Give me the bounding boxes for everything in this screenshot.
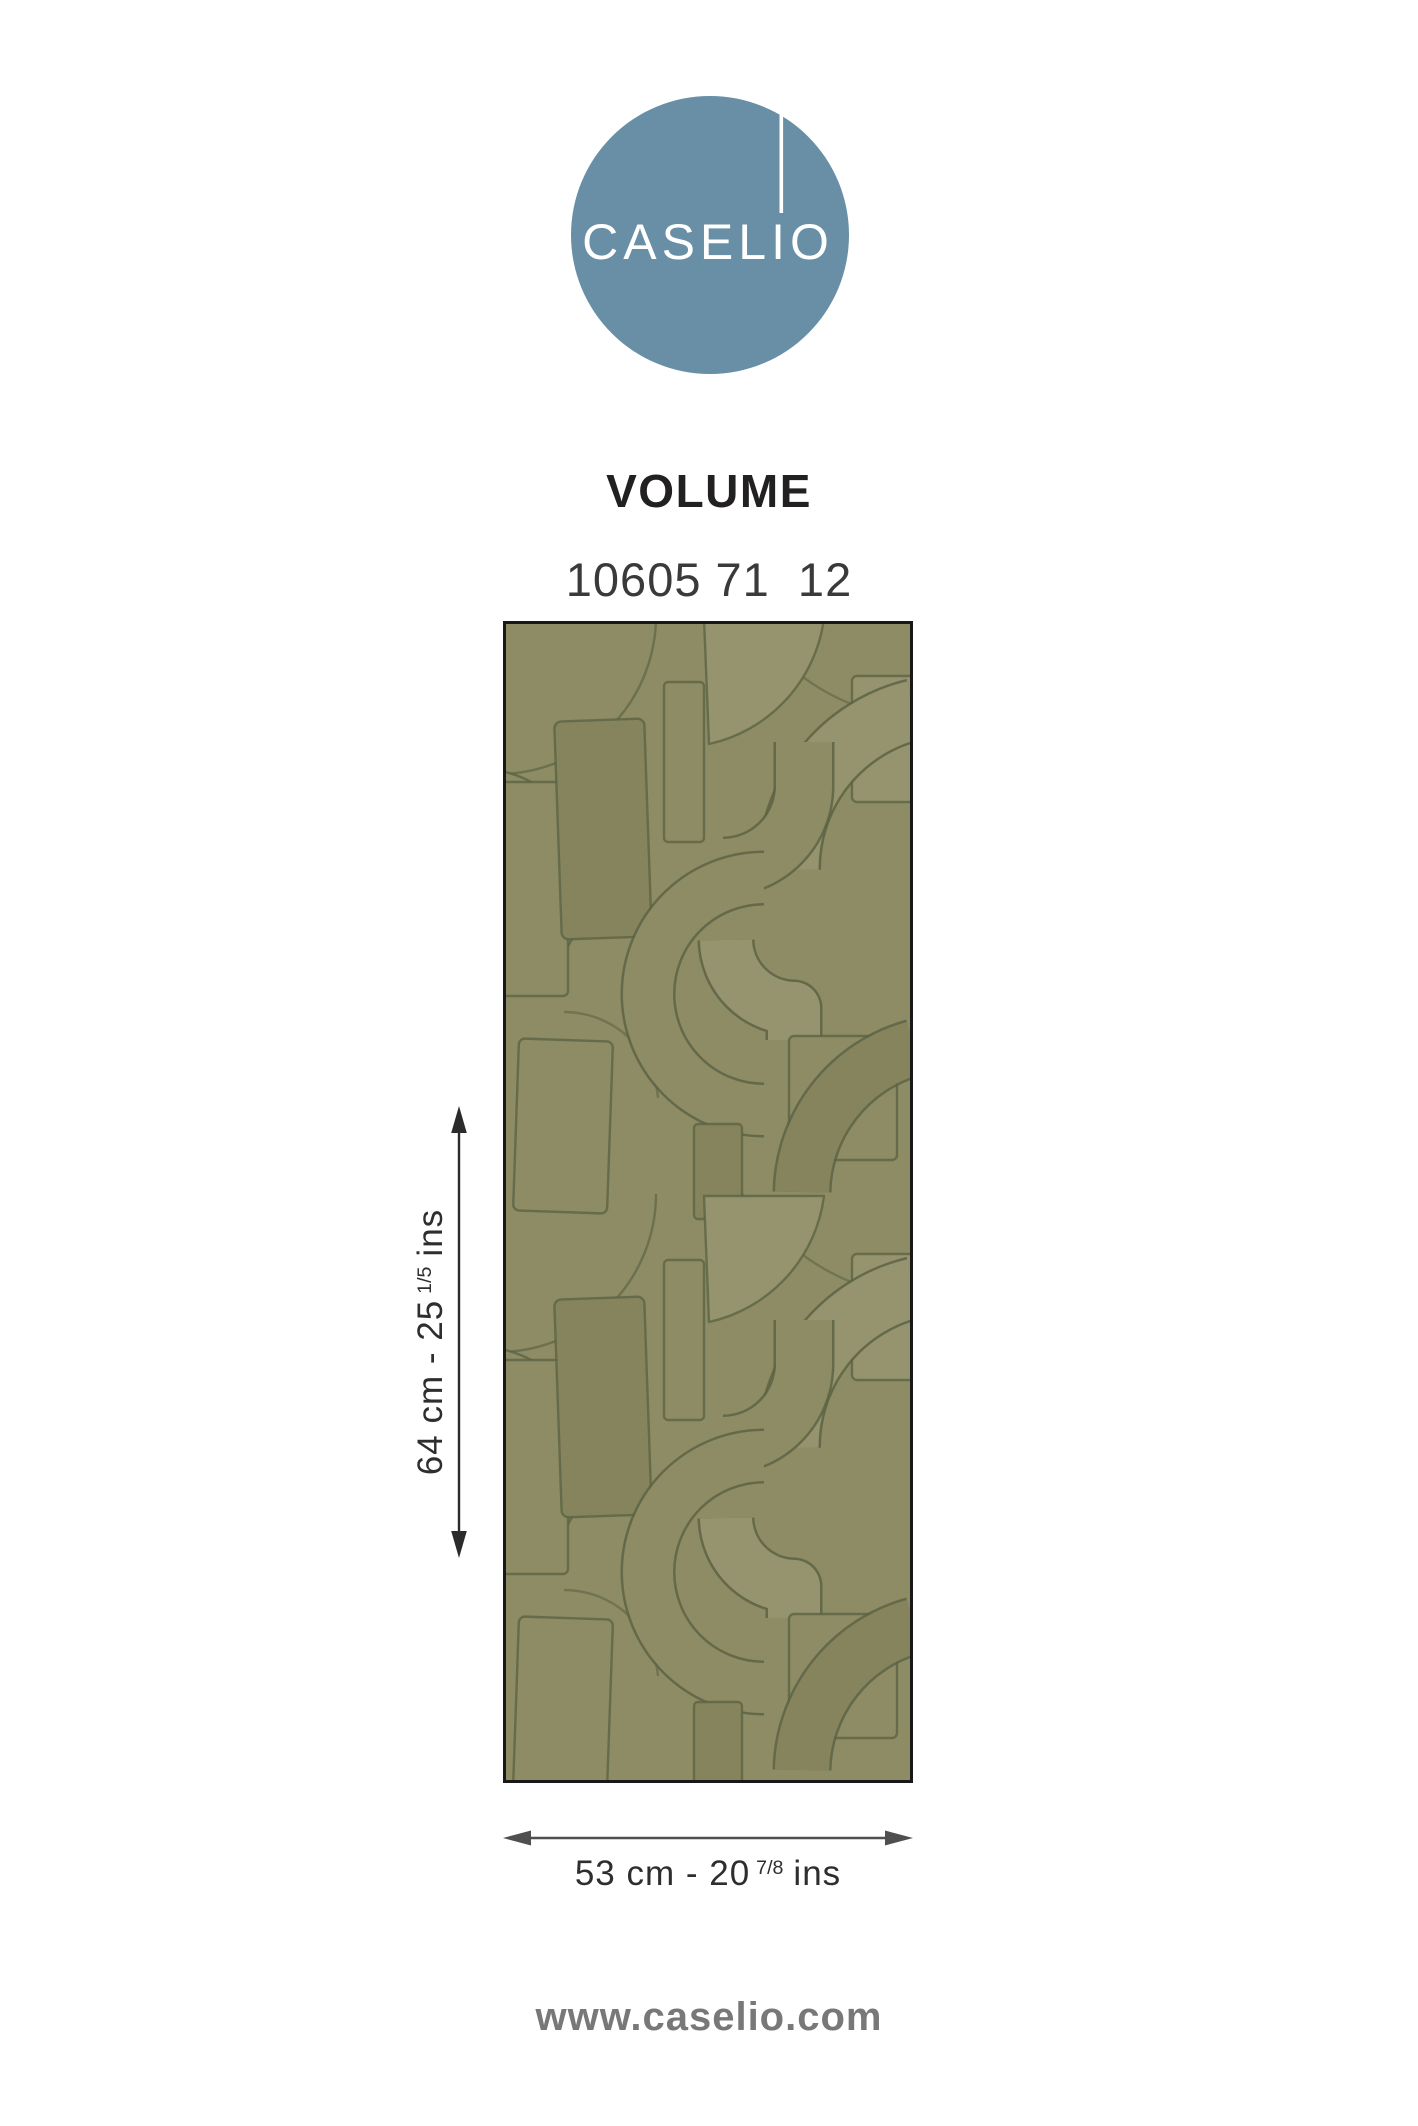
width-dimension-label: 53 cm - 207/8ins xyxy=(503,1854,913,1894)
width-unit: ins xyxy=(793,1854,841,1893)
height-dimension-label: 64 cm - 251/5ins xyxy=(411,1209,451,1475)
up-arrowhead-icon xyxy=(451,1106,467,1133)
right-arrowhead-icon xyxy=(885,1831,913,1846)
width-dimension-arrow xyxy=(503,1824,913,1852)
product-reference: 10605 71 12 xyxy=(0,552,1418,607)
wallpaper-swatch xyxy=(503,621,913,1783)
logo-mark-line xyxy=(780,115,784,213)
brand-wordmark: CASELIO xyxy=(582,214,834,270)
width-value: 53 cm - 20 xyxy=(575,1854,750,1893)
height-unit: ins xyxy=(411,1209,450,1257)
height-value: 64 cm - 25 xyxy=(411,1300,450,1475)
swatch-pattern xyxy=(506,624,910,1780)
product-sheet-page: CASELIO VOLUME 10605 71 12 xyxy=(0,0,1418,2126)
website-url: www.caselio.com xyxy=(0,1995,1418,2040)
left-arrowhead-icon xyxy=(503,1831,531,1846)
caselio-logo: CASELIO xyxy=(571,96,849,374)
width-fraction: 7/8 xyxy=(756,1857,783,1879)
height-fraction: 1/5 xyxy=(414,1267,436,1294)
collection-title: VOLUME xyxy=(0,464,1418,518)
down-arrowhead-icon xyxy=(451,1531,467,1558)
